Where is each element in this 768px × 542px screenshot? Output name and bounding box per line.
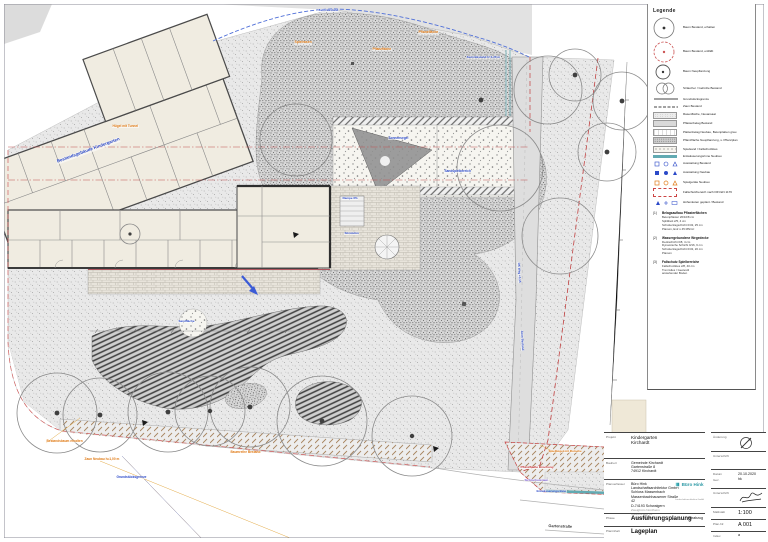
legend-swatch-tree-exist-icon	[653, 17, 683, 39]
scale-value: 1:100	[738, 510, 752, 518]
client-value: Gemeinde Kirchardt Gartenstraße 8 74912 …	[631, 461, 663, 479]
legend-item-label: Grundstücksgrenze	[683, 98, 709, 101]
index-row: Index a	[711, 531, 766, 539]
legend-item-label: Ausstattung Neubau	[683, 171, 710, 174]
date-value: 20.10.2020	[738, 472, 756, 477]
legend-item-sym-orange: Spielgeräte Neubau	[653, 179, 753, 187]
legend-title: Legende	[653, 8, 753, 14]
client-label: Bauherr	[606, 461, 631, 479]
plan-no-value: A 001	[738, 522, 752, 530]
drawn-label: Gez.	[713, 477, 738, 482]
plan-no-label: Plan-Nr.	[713, 522, 738, 530]
content-row: Planinhalt Lageplan	[604, 526, 705, 539]
title-block-left: Projekt Kindergarten Kirchardt Bauherr G…	[604, 432, 705, 539]
legend-swatch-sym-orange-icon	[653, 179, 683, 187]
legend-swatch-tree-new-icon	[653, 64, 683, 80]
legend-item-sw-stipple-light: Rasenfläche, Neuansaat	[653, 112, 753, 119]
legend-item-sw-coarse: Spielsand / Fallschutzkies	[653, 146, 753, 153]
scale-label: Maßstab	[713, 510, 738, 518]
legend-note-body: Belagsaufbau PflasterflächenBetonpflaste…	[662, 211, 707, 231]
legend-note-body: Wassergebundene WegedeckeDeckschicht 0/8…	[662, 236, 709, 256]
legend-swatch-line-solid-icon	[653, 96, 683, 102]
legend-item-sym-h: Höhenkoten geplant / Bestand	[653, 199, 753, 207]
planstand: Planstand Vorabzug	[672, 516, 703, 521]
content-value: Lageplan	[631, 529, 657, 539]
index-value: a	[738, 533, 740, 538]
legend-note-line: Planum	[662, 252, 709, 256]
legend-item-label: Spielsand / Fallschutzkies	[683, 148, 718, 151]
legend-item-shrub: Sträucher / Gehölze Bestand	[653, 82, 753, 95]
signature-label-2: Unterschrift	[713, 490, 738, 506]
legend-item-label: Baum Neupflanzung	[683, 70, 710, 73]
date-row: Datum 20.10.2020 Gez. hk	[711, 469, 766, 488]
legend-item-sw-outline: Plattenbelag Neubau, Betonplatten grau	[653, 129, 753, 136]
legend-item-label: Sträucher / Gehölze Bestand	[683, 87, 722, 90]
legend-swatch-sw-stipple-light-icon	[653, 112, 683, 119]
stairs	[340, 196, 364, 226]
legend-swatch-sw-outline-icon	[653, 129, 683, 136]
signature-label-1: Unterschrift	[713, 453, 738, 468]
legend-item-sym-blue: Ausstattung Bestand	[653, 160, 753, 168]
signature	[738, 490, 764, 504]
plan-sheet: Bestandsgebäude KindergartenHügel mit Tu…	[0, 0, 768, 542]
project-value: Kindergarten Kirchardt	[631, 435, 657, 458]
legend-note-number: (3)	[653, 260, 662, 276]
legend-swatch-shrub-icon	[653, 82, 683, 95]
legend-item-label: Zaun Bestand	[683, 105, 702, 108]
legend-swatch-sw-gray-icon	[653, 120, 683, 127]
date-label: Datum	[713, 472, 738, 477]
project-label: Projekt	[606, 435, 631, 458]
north-arrow-icon	[738, 435, 754, 450]
signature-row-1: Unterschrift	[711, 451, 766, 470]
legend-note-line: anstehender Boden	[662, 272, 699, 276]
legend-notes: (1)Belagsaufbau PflasterflächenBetonpfla…	[653, 211, 753, 276]
legend-item-tree-exist: Baum Bestand, erhalten	[653, 17, 753, 39]
title-block: Projekt Kindergarten Kirchardt Bauherr G…	[604, 432, 766, 539]
company-logo: Büro Hink Landschaftsarchitektur GmbH	[675, 482, 704, 505]
legend-swatch-sym-blue2-icon	[653, 169, 683, 177]
planner-label: Planverfasser	[606, 482, 631, 513]
legend-item-tree-new: Baum Neupflanzung	[653, 64, 753, 80]
revision-row: Änderung	[711, 432, 766, 451]
legend-note: (2)Wassergebundene WegedeckeDeckschicht …	[653, 236, 753, 256]
legend-item-label: Pflasterbelag Bestand	[683, 122, 712, 125]
legend-item-label: Entwässerungsrinne Neubau	[683, 155, 722, 158]
plan-no-row: Plan-Nr. A 001	[711, 519, 766, 531]
legend-item-rect-red: Fallschutzbereich nach DIN EN 1176	[653, 188, 753, 197]
legend-item-label: Plattenbelag Neubau, Betonplatten grau	[683, 131, 736, 134]
legend-rows: Baum Bestand, erhaltenBaum Bestand, entf…	[653, 17, 753, 207]
legend-note: (3)Fallschutz SpielbereicheFallschutzkie…	[653, 260, 753, 276]
legend-item-sw-stipple-dark: Pflanzfläche Neupflanzung, s. Pflanzplan	[653, 137, 753, 144]
legend-item-line-dash: Zaun Bestand	[653, 104, 753, 110]
legend-note-line: Planum, Ev2 ≥ 45 MN/m²	[662, 228, 707, 232]
index-label: Index	[713, 533, 738, 538]
title-block-right: Änderung Unterschrift Datum 20.10.2020 G…	[711, 432, 766, 539]
legend-note: (1)Belagsaufbau PflasterflächenBetonpfla…	[653, 211, 753, 231]
drawn-value: hk	[738, 477, 742, 482]
legend-item-sw-gray: Pflasterbelag Bestand	[653, 120, 753, 127]
terrace-east	[318, 186, 420, 270]
legend-swatch-line-dash-icon	[653, 104, 683, 110]
legend-item-tree-remove: Baum Bestand, entfällt	[653, 41, 753, 63]
signature-row-2: Unterschrift	[711, 488, 766, 508]
logo-subtitle: Landschaftsarchitektur GmbH	[675, 499, 704, 501]
legend-swatch-sw-stipple-dark-icon	[653, 137, 683, 144]
planting-blob-small	[296, 382, 362, 425]
legend-item-label: Rasenfläche, Neuansaat	[683, 113, 716, 116]
planner-row: Planverfasser Büro Hink Landschaftsarchi…	[604, 479, 705, 513]
terrace-south	[88, 268, 320, 294]
legend-item-label: Pflanzfläche Neupflanzung, s. Pflanzplan	[683, 139, 738, 142]
client-row: Bauherr Gemeinde Kirchardt Gartenstraße …	[604, 458, 705, 479]
building-center	[237, 186, 330, 268]
legend-note-number: (1)	[653, 211, 662, 231]
legend-note-body: Fallschutz SpielbereicheFallschutzkies 2…	[662, 260, 699, 276]
phase-row: Phase Ausführungsplanung Planstand Vorab…	[604, 513, 705, 526]
phase-label: Phase	[606, 516, 631, 526]
spiral-element	[375, 235, 399, 259]
legend-swatch-sym-blue-icon	[653, 160, 683, 168]
legend-panel: Legende Baum Bestand, erhaltenBaum Besta…	[647, 4, 756, 390]
project-row: Projekt Kindergarten Kirchardt	[604, 432, 705, 458]
legend-item-label: Baum Bestand, erhalten	[683, 26, 715, 29]
legend-note-number: (2)	[653, 236, 662, 256]
legend-swatch-rect-red-icon	[653, 188, 683, 197]
legend-swatch-sw-coarse-icon	[653, 146, 683, 153]
sand-pocket	[179, 309, 207, 337]
legend-swatch-sym-h-icon	[653, 199, 683, 207]
content-label: Planinhalt	[606, 529, 631, 539]
legend-item-bar-teal: Entwässerungsrinne Neubau	[653, 155, 753, 158]
legend-swatch-bar-teal-icon	[653, 155, 683, 158]
legend-item-label: Fallschutzbereich nach DIN EN 1176	[683, 191, 732, 194]
legend-item-label: Spielgeräte Neubau	[683, 181, 710, 184]
legend-item-label: Ausstattung Bestand	[683, 162, 711, 165]
legend-item-sym-blue2: Ausstattung Neubau	[653, 169, 753, 177]
legend-swatch-tree-remove-icon	[653, 41, 683, 63]
legend-item-label: Höhenkoten geplant / Bestand	[683, 201, 723, 204]
revision-label: Änderung	[713, 435, 738, 450]
legend-item-line-solid: Grundstücksgrenze	[653, 96, 753, 102]
logo-name: Büro Hink	[682, 482, 704, 487]
scale-row: Maßstab 1:100	[711, 507, 766, 519]
legend-item-label: Baum Bestand, entfällt	[683, 50, 713, 53]
play-strip	[333, 117, 521, 197]
logo-icon	[675, 482, 680, 487]
